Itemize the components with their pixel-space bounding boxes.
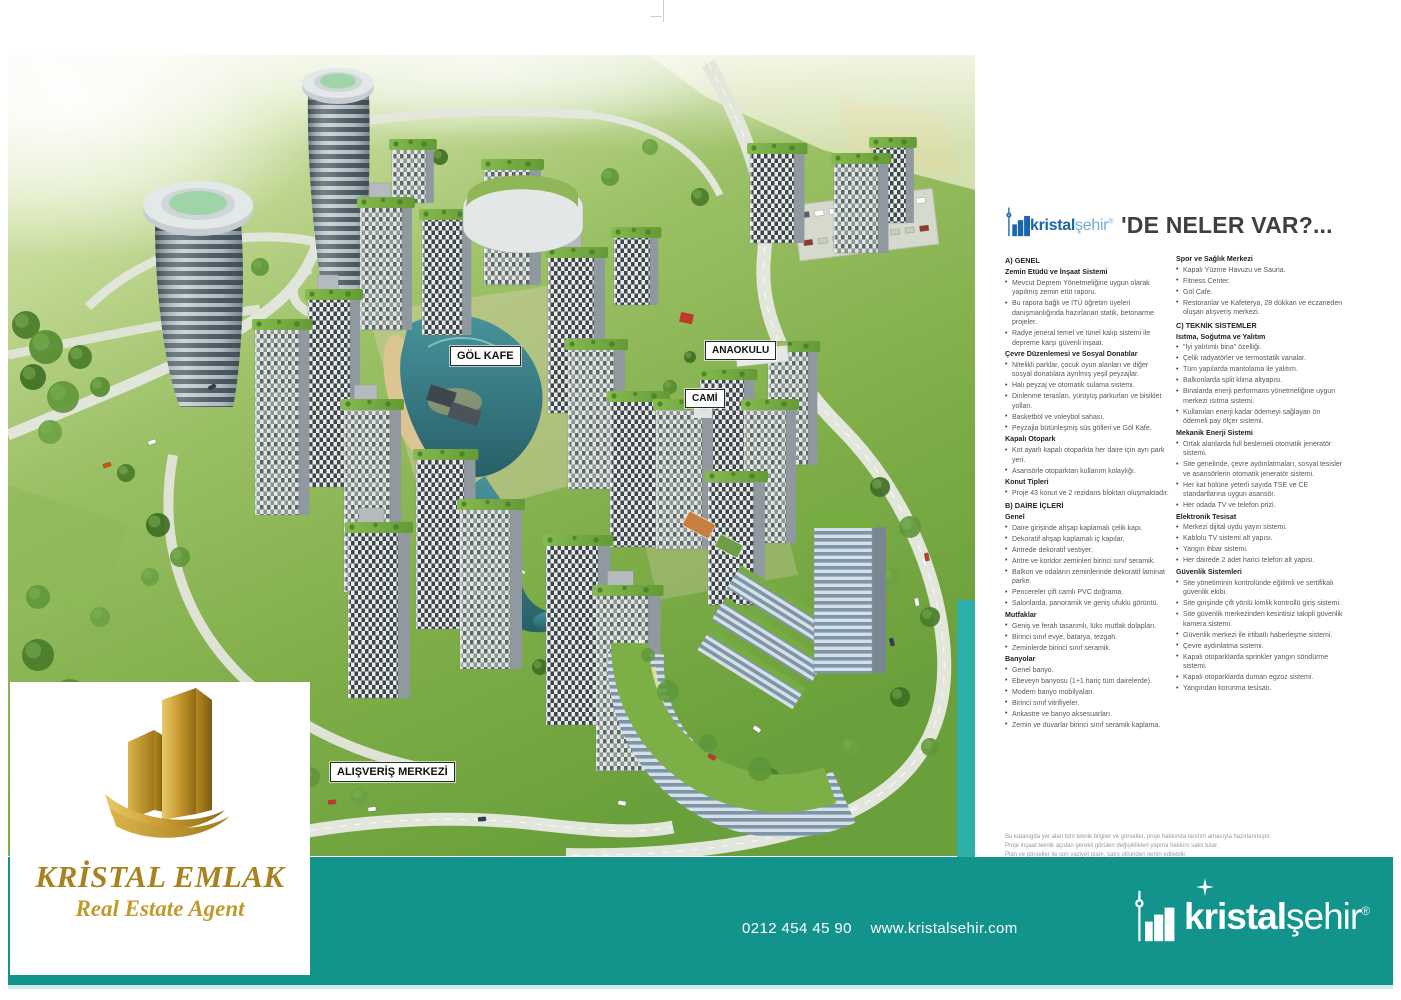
website-url: www.kristalsehir.com xyxy=(870,920,1017,937)
feature-item: Basketbol ve voleybol sahası. xyxy=(1005,413,1169,423)
feature-item: Güvenlik merkezi ile irtibatlı haberleşm… xyxy=(1176,631,1344,641)
feature-list: Daire girişinde ahşap kaplamalı çelik ka… xyxy=(1005,524,1169,609)
feature-list: Kapalı Yüzme Havuzu ve Sauna.Fitness Cen… xyxy=(1176,266,1344,318)
feature-item: Genel banyo. xyxy=(1005,666,1169,676)
feature-item: Site güvenlik merkezinden kesintisiz tak… xyxy=(1176,610,1344,629)
map-label-gol-kafe: GÖL KAFE xyxy=(450,346,521,366)
feature-item: Bu rapora bağlı ve İTÜ öğretim üyeleri d… xyxy=(1005,299,1169,328)
crop-mark xyxy=(663,0,664,22)
feature-item: Dekoratif ahşap kaplamalı iç kapılar. xyxy=(1005,535,1169,545)
disclaimer-line: Proje inşaat teknik açıdan gerekli görül… xyxy=(1005,842,1335,851)
info-panel: kristalşehir® 'DE NELER VAR?... A) GENEL… xyxy=(975,0,1401,1000)
feature-item: Her dairede 2 adet harici telefon alt ya… xyxy=(1176,556,1344,566)
feature-item: Yangından korunma tesisatı. xyxy=(1176,684,1344,694)
feature-item: Antrede dekoratif vestiyer. xyxy=(1005,546,1169,556)
feature-item: Her odada TV ve telefon prizi. xyxy=(1176,501,1344,511)
feature-item: Dinlenme terasları, yürüyüş parkurları v… xyxy=(1005,392,1169,411)
feature-item: Her kat holüne yeterli sayıda TSE ve CE … xyxy=(1176,481,1344,500)
feature-heading: Zemin Etüdü ve İnşaat Sistemi xyxy=(1005,268,1169,278)
feature-item: Birinci sınıf evye, batarya, tezgah. xyxy=(1005,633,1169,643)
feature-item: Nitelikli parklar, çocuk oyun alanları v… xyxy=(1005,361,1169,380)
feature-heading: C) TEKNİK SİSTEMLER xyxy=(1176,321,1344,331)
kristalsehir-skyline-icon xyxy=(1003,204,1030,238)
feature-list: Site yönetiminin kontrolünde eğitimli ve… xyxy=(1176,579,1344,694)
feature-item: Göl Cafe. xyxy=(1176,288,1344,298)
feature-column-1: A) GENELZemin Etüdü ve İnşaat SistemiMev… xyxy=(1005,253,1169,732)
feature-item: Balkon ve odaların zeminlerinde dekorati… xyxy=(1005,568,1169,587)
feature-item: Radye jeneral temel ve tünel kalıp siste… xyxy=(1005,329,1169,348)
map-label-avm: ALIŞVERİŞ MERKEZİ xyxy=(330,762,455,782)
feature-item: Çevre aydınlatma sistemi. xyxy=(1176,642,1344,652)
feature-list: Nitelikli parklar, çocuk oyun alanları v… xyxy=(1005,361,1169,434)
feature-item: Modern banyo mobilyaları. xyxy=(1005,688,1169,698)
feature-item: Kullanılan enerji kadar ödemeyi sağlayan… xyxy=(1176,408,1344,427)
feature-item: Pencereler çift camlı PVC doğrama. xyxy=(1005,588,1169,598)
feature-heading: Genel xyxy=(1005,513,1169,523)
agent-name: KRİSTAL EMLAK xyxy=(10,859,310,895)
kristalsehir-skyline-icon xyxy=(1126,888,1178,944)
map-label-anaokulu: ANAOKULU xyxy=(705,341,776,360)
feature-heading: Konut Tipleri xyxy=(1005,478,1169,488)
contact-info: 0212 454 45 90 www.kristalsehir.com xyxy=(742,920,1018,937)
feature-item: Kot ayarlı kapalı otoparkta her daire iç… xyxy=(1005,446,1169,465)
feature-heading: Kapalı Otopark xyxy=(1005,435,1169,445)
agent-tagline: Real Estate Agent xyxy=(10,896,310,922)
feature-item: Yangın ihbar sistemi. xyxy=(1176,545,1344,555)
feature-heading: Spor ve Sağlık Merkezi xyxy=(1176,255,1344,265)
feature-list: Mevcut Deprem Yönetmeliğine uygun olarak… xyxy=(1005,279,1169,349)
feature-heading: Isıtma, Soğutma ve Yalıtım xyxy=(1176,333,1344,343)
feature-item: Ankastre ve banyo aksesuarları. xyxy=(1005,710,1169,720)
feature-item: Balkonlarda split klima altyapısı. xyxy=(1176,376,1344,386)
disclaimer-line: Bu katalogda yer alan tüm teknik bilgile… xyxy=(1005,833,1335,842)
feature-item: Tüm yapılarda mantolama ile yalıtım. xyxy=(1176,365,1344,375)
feature-heading: B) DAİRE İÇLERİ xyxy=(1005,501,1169,511)
crop-mark xyxy=(650,16,662,17)
kristalsehir-wordmark: kristalşehir® xyxy=(1030,218,1113,238)
phone-number: 0212 454 45 90 xyxy=(742,920,852,937)
feature-item: Çelik radyatörler ve termostatik vanalar… xyxy=(1176,354,1344,364)
wordmark-light: şehir xyxy=(1286,896,1361,937)
feature-item: Site genelinde, çevre aydınlatmaları, so… xyxy=(1176,460,1344,479)
arc-building xyxy=(463,175,583,253)
teal-side-strip xyxy=(957,600,975,857)
feature-heading: Mutfaklar xyxy=(1005,611,1169,621)
feature-item: Geniş ve ferah tasarımlı, lüks mutfak do… xyxy=(1005,622,1169,632)
feature-item: Daire girişinde ahşap kaplamalı çelik ka… xyxy=(1005,524,1169,534)
feature-list: Proje 43 konut ve 2 rezidans bloktan olu… xyxy=(1005,489,1169,499)
feature-item: Zemin ve duvarlar birinci sınıf seramik … xyxy=(1005,721,1169,731)
feature-item: Site girişinde çift yönlü kimlik kontrol… xyxy=(1176,599,1344,609)
feature-list: Geniş ve ferah tasarımlı, lüks mutfak do… xyxy=(1005,622,1169,654)
feature-item: Binalarda enerji performans yönetmeliğin… xyxy=(1176,387,1344,406)
disclaimer: Bu katalogda yer alan tüm teknik bilgile… xyxy=(1005,833,1335,860)
feature-list: Kot ayarlı kapalı otoparkta her daire iç… xyxy=(1005,446,1169,476)
feature-item: Halı peyzaj ve otomatik sulama sistemi. xyxy=(1005,381,1169,391)
feature-item: Peyzajla bütünleşmiş süs gölleri ve Göl … xyxy=(1005,424,1169,434)
feature-item: Kapalı otoparklarda duman egzoz sistemi. xyxy=(1176,673,1344,683)
feature-item: Fitness Center. xyxy=(1176,277,1344,287)
feature-item: Kablolu TV sistemi alt yapısı. xyxy=(1176,534,1344,544)
footer-brand-logo: kristalşehir® xyxy=(1126,888,1369,944)
map-label-cami: CAMİ xyxy=(685,389,725,408)
panel-headline: 'DE NELER VAR?... xyxy=(1121,214,1333,238)
feature-item: "İyi yalıtımlı bina" özelliği. xyxy=(1176,343,1344,353)
feature-heading: Güvenlik Sistemleri xyxy=(1176,568,1344,578)
registered-mark: ® xyxy=(1108,219,1113,226)
agent-logo-card: KRİSTAL EMLAK Real Estate Agent xyxy=(10,682,310,975)
kristalsehir-wordmark: kristalşehir® xyxy=(1184,898,1369,935)
wordmark-light: şehir xyxy=(1075,217,1108,234)
brochure-page: GÖL KAFE ANAOKULU CAMİ ALIŞVERİŞ MERKEZİ… xyxy=(0,0,1401,1000)
feature-item: Merkezi dijital uydu yayın sistemi. xyxy=(1176,523,1344,533)
feature-column-2: Spor ve Sağlık MerkeziKapalı Yüzme Havuz… xyxy=(1176,253,1344,695)
feature-item: Zeminlerde birinci sınıf seramik. xyxy=(1005,644,1169,654)
feature-item: Mevcut Deprem Yönetmeliğine uygun olarak… xyxy=(1005,279,1169,298)
feature-heading: Mekanik Enerji Sistemi xyxy=(1176,429,1344,439)
panel-brand-header: kristalşehir® 'DE NELER VAR?... xyxy=(1003,196,1333,238)
feature-list: Genel banyo.Ebeveyn banyosu (1+1 hariç t… xyxy=(1005,666,1169,731)
feature-item: Proje 43 konut ve 2 rezidans bloktan olu… xyxy=(1005,489,1169,499)
wordmark-bold: kristal xyxy=(1030,217,1075,234)
feature-item: Ortak alanlarda full beslemeli otomatik … xyxy=(1176,440,1344,459)
feature-item: Kapalı Yüzme Havuzu ve Sauna. xyxy=(1176,266,1344,276)
feature-heading: Banyolar xyxy=(1005,655,1169,665)
agent-buildings-logo xyxy=(50,682,270,852)
striped-tower xyxy=(809,514,886,673)
feature-list: Ortak alanlarda full beslemeli otomatik … xyxy=(1176,440,1344,511)
feature-heading: A) GENEL xyxy=(1005,256,1169,266)
feature-item: Restoranlar ve Kafeterya, 28 dükkan ve e… xyxy=(1176,299,1344,318)
feature-heading: Elektronik Tesisat xyxy=(1176,513,1344,523)
feature-heading: Çevre Düzenlemesi ve Sosyal Donatılar xyxy=(1005,350,1169,360)
sparkle-icon xyxy=(1196,878,1214,896)
feature-item: Site yönetiminin kontrolünde eğitimli ve… xyxy=(1176,579,1344,598)
feature-list: "İyi yalıtımlı bina" özelliği.Çelik rady… xyxy=(1176,343,1344,427)
feature-item: Asansörle otoparktan kullanım kolaylığı. xyxy=(1005,467,1169,477)
feature-item: Birinci sınıf vitrifiyeler. xyxy=(1005,699,1169,709)
feature-item: Ebeveyn banyosu (1+1 hariç tüm dairelerd… xyxy=(1005,677,1169,687)
feature-list: Merkezi dijital uydu yayın sistemi.Kablo… xyxy=(1176,523,1344,566)
registered-mark: ® xyxy=(1361,904,1369,918)
feature-item: Salonlarda, panoramik ve geniş ufuklu gö… xyxy=(1005,599,1169,609)
wordmark-bold: kristal xyxy=(1184,896,1286,937)
feature-item: Kapalı otoparklarda sprinkler yangın sön… xyxy=(1176,653,1344,672)
feature-item: Antre ve koridor zeminleri birinci sınıf… xyxy=(1005,557,1169,567)
